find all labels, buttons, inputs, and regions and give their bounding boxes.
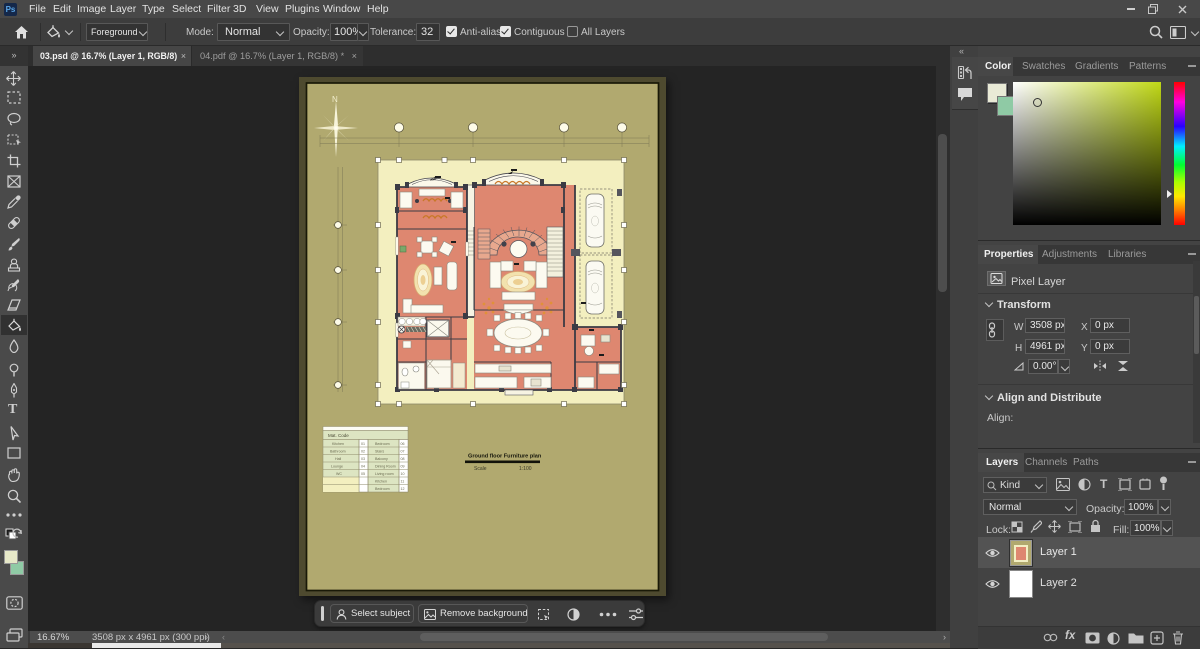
svg-text:05: 05: [361, 472, 365, 476]
svg-text:04: 04: [361, 465, 365, 469]
svg-text:Hall: Hall: [335, 457, 341, 461]
svg-text:02: 02: [361, 450, 365, 454]
svg-text:08: 08: [401, 457, 405, 461]
svg-text:07: 07: [401, 450, 405, 454]
svg-text:Kitchen: Kitchen: [375, 480, 387, 484]
svg-text:Lounge: Lounge: [331, 465, 343, 469]
svg-text:11: 11: [401, 480, 405, 484]
svg-text:06: 06: [401, 442, 405, 446]
svg-text:Stairs: Stairs: [375, 450, 384, 454]
svg-text:10: 10: [401, 472, 405, 476]
svg-text:Bedroom: Bedroom: [375, 487, 390, 491]
svg-text:N: N: [332, 95, 338, 104]
svg-text:Ground floor Furniture plan: Ground floor Furniture plan: [468, 454, 542, 460]
svg-text:Kitchen: Kitchen: [332, 442, 344, 446]
svg-text:Bedroom: Bedroom: [375, 442, 390, 446]
svg-text:09: 09: [401, 465, 405, 469]
svg-text:Scale: Scale: [474, 466, 487, 472]
svg-text:03: 03: [361, 457, 365, 461]
svg-text:Dining Room: Dining Room: [375, 465, 396, 469]
svg-text:12: 12: [401, 487, 405, 491]
svg-text:Mat. Code: Mat. Code: [328, 433, 349, 438]
svg-text:Balcony: Balcony: [375, 457, 388, 461]
svg-text:WC: WC: [336, 472, 342, 476]
svg-text:1:100: 1:100: [519, 466, 532, 472]
svg-text:01: 01: [361, 442, 365, 446]
svg-text:Bathroom: Bathroom: [330, 450, 346, 454]
svg-text:Living room: Living room: [375, 472, 394, 476]
